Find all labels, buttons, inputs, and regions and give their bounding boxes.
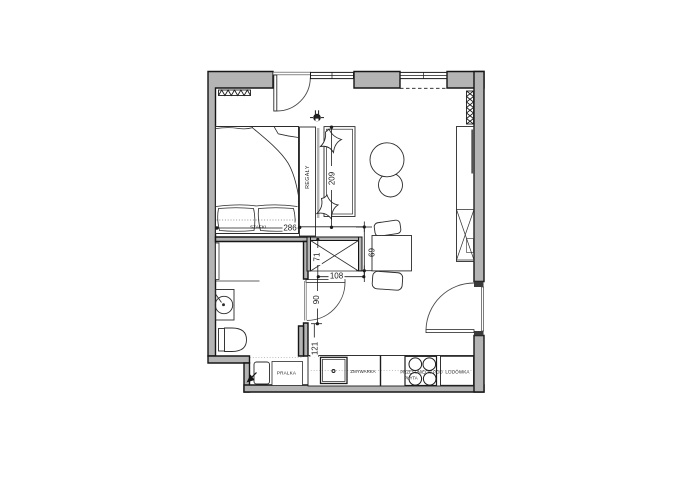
svg-text:209: 209	[328, 171, 337, 185]
svg-text:LODÓWKA: LODÓWKA	[445, 368, 470, 374]
svg-text:SZAFKI: SZAFKI	[250, 225, 266, 230]
svg-text:286: 286	[283, 224, 297, 233]
svg-text:PRZESUNIĘCIE POD: PRZESUNIĘCIE POD	[400, 369, 442, 374]
svg-text:REGAŁY: REGAŁY	[305, 165, 311, 189]
svg-text:90: 90	[312, 295, 321, 304]
svg-text:PRALKA: PRALKA	[277, 370, 297, 375]
svg-text:69: 69	[368, 248, 377, 257]
svg-text:108: 108	[330, 271, 344, 280]
svg-text:121: 121	[310, 341, 319, 355]
svg-text:ZMYWARKA: ZMYWARKA	[350, 369, 375, 374]
svg-text:PŁYTA: PŁYTA	[404, 375, 417, 380]
svg-text:71: 71	[313, 252, 322, 261]
